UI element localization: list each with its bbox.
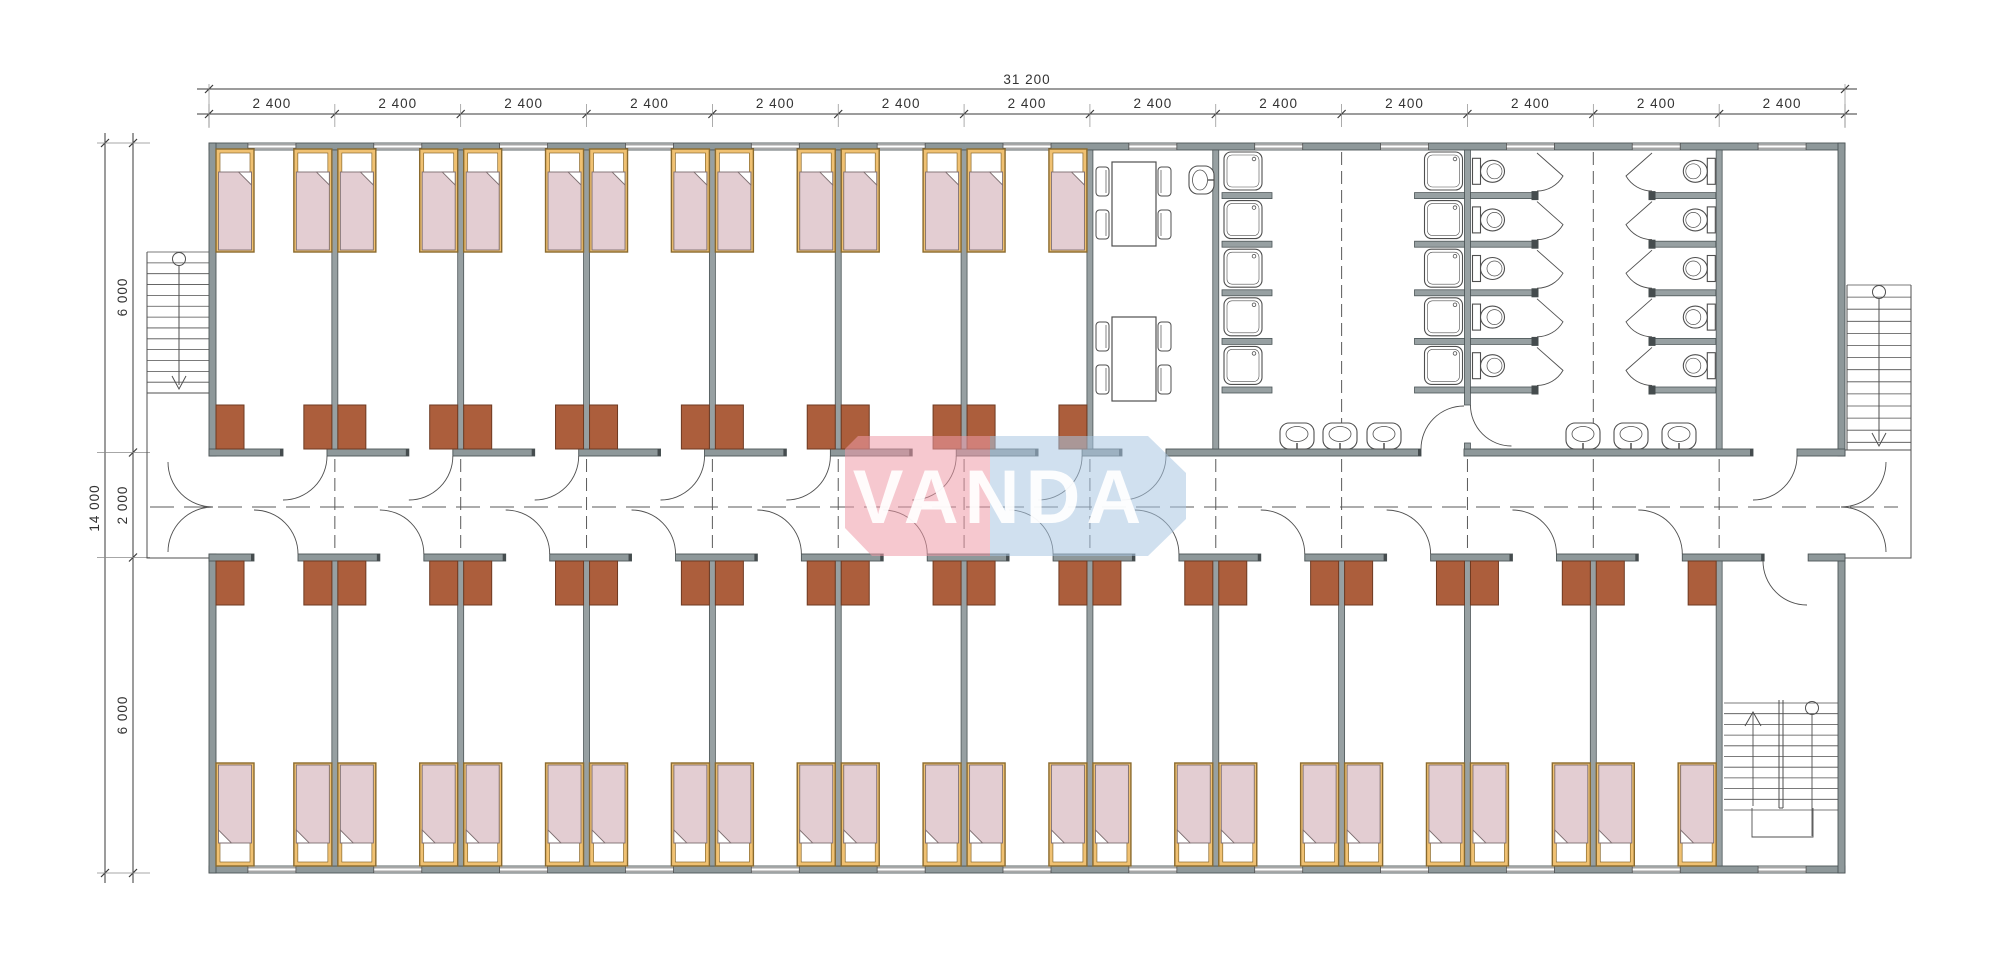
desk (556, 561, 584, 605)
bed-blanket (1347, 765, 1380, 843)
desk (216, 405, 244, 449)
bed-blanket (844, 765, 877, 843)
window (374, 867, 422, 873)
bed-blanket (296, 172, 329, 250)
exterior-wall-left (209, 143, 216, 456)
corridor-wall-top (209, 449, 283, 456)
desk (1059, 561, 1087, 605)
window (751, 144, 799, 150)
corridor-wall-bottom (1682, 554, 1764, 561)
dimension-label-module: 2 400 (882, 96, 921, 111)
window (1255, 144, 1303, 150)
bed-blanket (970, 172, 1003, 250)
stair-right-start-circle (1873, 286, 1886, 299)
wall-stub (1509, 554, 1512, 561)
wall-stub (1418, 449, 1421, 456)
desk (1093, 561, 1121, 605)
desk (1562, 561, 1590, 605)
door-arc-bedroom-bottom (380, 510, 424, 554)
door-arc-bedroom-bottom (1387, 510, 1431, 554)
door-arc-bedroom-bottom (1638, 510, 1682, 554)
partition-wall-top (458, 150, 464, 449)
shower-tray (1425, 201, 1463, 239)
bed-blanket (1599, 765, 1632, 843)
door-arc-bedroom-bottom (254, 510, 298, 554)
window (1003, 144, 1051, 150)
floor-plan-drawing: 31 200 2 400 2 400 2 400 2 400 2 400 2 4… (0, 0, 2000, 977)
toilet-door-leaf (1537, 202, 1563, 240)
corridor-wall-bottom (801, 554, 883, 561)
dimension-label-module: 2 400 (756, 96, 795, 111)
window (1129, 144, 1177, 150)
toilet-tank (1473, 158, 1481, 184)
bed-blanket (674, 765, 707, 843)
partition-wall-bottom (1716, 561, 1722, 866)
door-arc-bedroom-top (283, 456, 327, 500)
porch-right-outline (1845, 450, 1911, 558)
door-arc-bedroom-top (786, 456, 830, 500)
bed-blanket (422, 765, 455, 843)
partition-wall-bottom (332, 561, 338, 866)
shower-tray (1224, 201, 1262, 239)
bed-blanket (800, 765, 833, 843)
bed-blanket (1681, 765, 1714, 843)
wall-stub (251, 554, 254, 561)
desk (1436, 561, 1464, 605)
bed-blanket (1473, 765, 1506, 843)
wall-stub (377, 554, 380, 561)
desk (841, 561, 869, 605)
bed-blanket (219, 765, 252, 843)
bed-blanket (1221, 765, 1254, 843)
corridor-wall-bottom (1179, 554, 1261, 561)
shower-tray (1425, 249, 1463, 287)
bed-blanket (970, 765, 1003, 843)
toilet-tank (1473, 304, 1481, 330)
stair-left-start-circle (173, 253, 186, 266)
dimension-label-module: 2 400 (630, 96, 669, 111)
door-arc-bedroom-bottom (632, 510, 676, 554)
bed-blanket (674, 172, 707, 250)
toilet-partition (1471, 387, 1535, 393)
toilet-door-leaf (1626, 202, 1652, 240)
window (500, 144, 548, 150)
toilet-door-stub (1532, 386, 1539, 395)
partition-wall-top (1464, 150, 1470, 405)
shower-tray (1224, 346, 1262, 384)
bed-blanket (340, 765, 373, 843)
toilet-partition (1471, 290, 1535, 296)
window (374, 144, 422, 150)
shower-partition (1415, 193, 1465, 199)
window (1758, 867, 1806, 873)
window (625, 867, 673, 873)
toilet-bowl (1481, 355, 1505, 377)
toilet-partition (1652, 290, 1716, 296)
toilet-bowl (1481, 209, 1505, 231)
partition-wall-top (1716, 150, 1722, 449)
desk (681, 561, 709, 605)
corridor-wall-bottom (676, 554, 758, 561)
desk (430, 405, 458, 449)
door-arc-bedroom-bottom (506, 510, 550, 554)
toilet-tank (1707, 158, 1715, 184)
bed-blanket (926, 765, 959, 843)
partition-wall-bottom (1339, 561, 1345, 866)
desk (715, 561, 743, 605)
shower-partition (1222, 193, 1272, 199)
toilet-tank (1707, 207, 1715, 233)
stair-interior-start-circle (1806, 702, 1819, 715)
bed-blanket (1051, 765, 1084, 843)
desk (464, 561, 492, 605)
bed-blanket (422, 172, 455, 250)
dimension-label-module: 2 400 (1511, 96, 1550, 111)
window (1506, 867, 1554, 873)
desk (590, 561, 618, 605)
corridor-wall-top (1166, 449, 1421, 456)
chair (1158, 322, 1171, 351)
dimension-label-total-depth: 14 000 (87, 484, 102, 531)
exterior-wall-right (1838, 143, 1845, 456)
desk (715, 405, 743, 449)
chair (1096, 167, 1109, 196)
door-arc-entrance-left (168, 507, 213, 552)
wall-stub (503, 554, 506, 561)
window (1381, 144, 1429, 150)
corridor-wall-bottom (298, 554, 380, 561)
wall-stub (1258, 554, 1261, 561)
bed-blanket (219, 172, 252, 250)
porch-left-outline (147, 393, 213, 558)
bed-blanket (1177, 765, 1210, 843)
toilet-door-stub (1532, 191, 1539, 200)
chair (1096, 322, 1109, 351)
shower-tray (1425, 346, 1463, 384)
corridor-wall-top (1464, 449, 1753, 456)
shower-tray (1224, 152, 1262, 190)
toilet-door-stub (1532, 240, 1539, 249)
toilet-bowl (1683, 209, 1707, 231)
toilet-tank (1707, 304, 1715, 330)
toilet-bowl (1683, 160, 1707, 182)
toilet-bowl (1481, 306, 1505, 328)
toilet-partition (1471, 241, 1535, 247)
wall-stub (1384, 554, 1387, 561)
door-arc-bedroom-top (409, 456, 453, 500)
toilet-door-stub (1649, 337, 1656, 346)
toilet-partition (1471, 338, 1535, 344)
partition-wall-top (1213, 150, 1219, 449)
toilet-door-leaf (1626, 347, 1652, 385)
dimension-label-module: 2 400 (253, 96, 292, 111)
chair (1158, 167, 1171, 196)
bed-blanket (1095, 765, 1128, 843)
partition-wall-top (835, 150, 841, 449)
shower-partition (1415, 290, 1465, 296)
door-arc-stair-room (1763, 561, 1807, 605)
window (248, 867, 296, 873)
toilet-bowl (1683, 258, 1707, 280)
stair-interior-landing (1752, 808, 1813, 837)
corridor-wall-bottom (1556, 554, 1638, 561)
toilet-tank (1707, 256, 1715, 282)
bed-blanket (844, 172, 877, 250)
partition-wall-bottom (1590, 561, 1596, 866)
shower-partition (1415, 387, 1465, 393)
desk (430, 561, 458, 605)
canteen-table (1112, 162, 1156, 246)
wall-stub (532, 449, 535, 456)
toilet-door-stub (1532, 337, 1539, 346)
dimension-label-module: 2 400 (1133, 96, 1172, 111)
desk (933, 561, 961, 605)
bed-blanket (926, 172, 959, 250)
desk (681, 405, 709, 449)
toilet-bowl (1481, 160, 1505, 182)
toilet-door-stub (1649, 240, 1656, 249)
chair (1096, 210, 1109, 239)
dimension-label-module: 2 400 (1637, 96, 1676, 111)
door-arc-washroom (1421, 406, 1464, 449)
corridor-wall-bottom (424, 554, 506, 561)
toilet-door-leaf (1626, 250, 1652, 288)
watermark-text: VANDA (853, 455, 1148, 540)
toilet-partition (1652, 241, 1716, 247)
window (1632, 144, 1680, 150)
partition-wall-top (1087, 150, 1093, 449)
toilet-tank (1473, 353, 1481, 379)
partition-wall-bottom (961, 561, 967, 866)
desk (1470, 561, 1498, 605)
dimension-label-total-width: 31 200 (1003, 72, 1050, 87)
door-arc-bedroom-bottom (1261, 510, 1305, 554)
canteen-table (1112, 317, 1156, 401)
shower-partition (1222, 290, 1272, 296)
door-arc-bedroom-bottom (757, 510, 801, 554)
corridor-wall-bottom (1305, 554, 1387, 561)
corridor-wall-top (453, 449, 535, 456)
window (1758, 144, 1806, 150)
wall-stub (280, 449, 283, 456)
window (500, 867, 548, 873)
partition-wall-top (1464, 443, 1470, 449)
dimension-label-zone: 6 000 (115, 278, 130, 317)
window (877, 867, 925, 873)
shower-tray (1425, 298, 1463, 336)
door-arc-bedroom-top (535, 456, 579, 500)
dimension-label-module: 2 400 (1763, 96, 1802, 111)
shower-partition (1415, 241, 1465, 247)
door-arc-bedroom-bottom (1512, 510, 1556, 554)
corridor-wall-bottom (1431, 554, 1513, 561)
corridor-wall-top (705, 449, 787, 456)
wall-stub (629, 554, 632, 561)
bed-blanket (718, 172, 751, 250)
toilet-door-leaf (1537, 250, 1563, 288)
desk (967, 561, 995, 605)
desk (1688, 561, 1716, 605)
toilet-partition (1652, 193, 1716, 199)
desk (1219, 561, 1247, 605)
bed-blanket (466, 765, 499, 843)
dimension-label-module: 2 400 (1008, 96, 1047, 111)
window (877, 144, 925, 150)
desk (1345, 561, 1373, 605)
shower-partition (1415, 338, 1465, 344)
toilet-bowl (1683, 306, 1707, 328)
desk (807, 561, 835, 605)
toilet-door-stub (1649, 288, 1656, 297)
toilet-door-stub (1649, 386, 1656, 395)
door-arc-entrance-left (168, 462, 213, 507)
shower-tray (1224, 249, 1262, 287)
desk (807, 405, 835, 449)
window (1632, 867, 1680, 873)
bed-blanket (1555, 765, 1588, 843)
partition-wall-bottom (1087, 561, 1093, 866)
partition-wall-bottom (835, 561, 841, 866)
toilet-door-stub (1532, 288, 1539, 297)
toilet-door-leaf (1626, 153, 1652, 191)
toilet-door-leaf (1626, 299, 1652, 337)
corridor-wall-bottom (209, 554, 254, 561)
partition-wall-bottom (584, 561, 590, 866)
bed-blanket (800, 172, 833, 250)
partition-wall-bottom (1213, 561, 1219, 866)
window (625, 144, 673, 150)
bed-blanket (1429, 765, 1462, 843)
window (751, 867, 799, 873)
toilet-door-stub (1649, 191, 1656, 200)
bed-blanket (466, 172, 499, 250)
partition-wall-top (332, 150, 338, 449)
corridor-wall-bottom (550, 554, 632, 561)
bed-blanket (592, 765, 625, 843)
toilet-door-leaf (1537, 153, 1563, 191)
shower-partition (1222, 241, 1272, 247)
chair (1158, 210, 1171, 239)
chair (1158, 365, 1171, 394)
toilet-door-leaf (1537, 299, 1563, 337)
bed-blanket (548, 765, 581, 843)
partition-wall-bottom (709, 561, 715, 866)
shower-partition (1222, 387, 1272, 393)
window (1003, 867, 1051, 873)
toilet-partition (1471, 193, 1535, 199)
toilet-door-leaf (1537, 347, 1563, 385)
wall-stub (783, 449, 786, 456)
desk (1596, 561, 1624, 605)
bed-blanket (1303, 765, 1336, 843)
wall-stub (658, 449, 661, 456)
desk (304, 561, 332, 605)
dimension-label-module: 2 400 (378, 96, 417, 111)
door-arc-toilet-room (1470, 405, 1511, 446)
toilet-tank (1473, 207, 1481, 233)
desk (556, 405, 584, 449)
dimension-label-module: 2 400 (1385, 96, 1424, 111)
toilet-tank (1707, 353, 1715, 379)
desk (216, 561, 244, 605)
partition-wall-top (709, 150, 715, 449)
partition-wall-bottom (1464, 561, 1470, 866)
wall-stub (754, 554, 757, 561)
toilet-partition (1652, 387, 1716, 393)
desk (1311, 561, 1339, 605)
wall-stub (1761, 554, 1764, 561)
door-arc-entrance-right (1841, 507, 1886, 552)
corridor-wall-top (1797, 449, 1845, 456)
wall-stub (1750, 449, 1753, 456)
desk (1185, 561, 1213, 605)
corridor-wall-top (579, 449, 661, 456)
window (1381, 867, 1429, 873)
floor-plan-page: 31 200 2 400 2 400 2 400 2 400 2 400 2 4… (0, 0, 2000, 977)
toilet-partition (1652, 338, 1716, 344)
window (1506, 144, 1554, 150)
corridor-wall-top (327, 449, 409, 456)
shower-tray (1224, 298, 1262, 336)
chair (1096, 365, 1109, 394)
partition-wall-top (961, 150, 967, 449)
shower-partition (1222, 338, 1272, 344)
desk (338, 561, 366, 605)
desk (590, 405, 618, 449)
dimension-label-module: 2 400 (504, 96, 543, 111)
window (1255, 867, 1303, 873)
toilet-bowl (1481, 258, 1505, 280)
dimension-label-zone: 6 000 (115, 696, 130, 735)
shower-tray (1425, 152, 1463, 190)
bed-blanket (1051, 172, 1084, 250)
exterior-wall-left (209, 554, 216, 873)
wall-stub (1635, 554, 1638, 561)
bed-blanket (340, 172, 373, 250)
wall-stub (406, 449, 409, 456)
bed-blanket (592, 172, 625, 250)
dimension-label-module: 2 400 (1259, 96, 1298, 111)
toilet-tank (1473, 256, 1481, 282)
desk (304, 405, 332, 449)
window (1129, 867, 1177, 873)
desk (464, 405, 492, 449)
door-arc-entrance-right (1841, 462, 1886, 507)
dimension-label-zone: 2 000 (115, 486, 130, 525)
door-arc-bedroom-top (661, 456, 705, 500)
corridor-wall-bottom (1808, 554, 1845, 561)
door-arc-storage-room (1753, 456, 1797, 500)
bed-blanket (296, 765, 329, 843)
partition-wall-top (584, 150, 590, 449)
partition-wall-bottom (458, 561, 464, 866)
exterior-wall-right (1838, 554, 1845, 873)
bed-blanket (718, 765, 751, 843)
toilet-bowl (1683, 355, 1707, 377)
window (248, 144, 296, 150)
desk (338, 405, 366, 449)
bed-blanket (548, 172, 581, 250)
